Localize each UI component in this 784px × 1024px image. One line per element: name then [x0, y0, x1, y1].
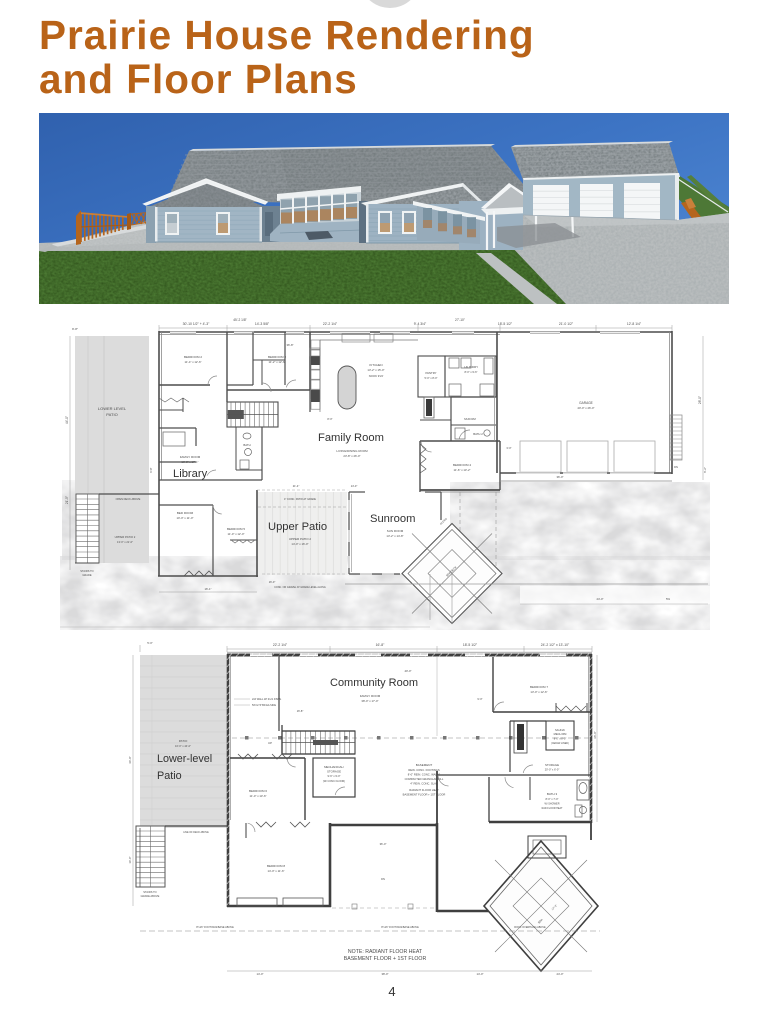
svg-text:24'-0": 24'-0"	[556, 972, 563, 976]
svg-text:SUN ROOM: SUN ROOM	[387, 529, 404, 533]
svg-text:CONC. OR GRAVEL AT GRADE LEVEL: CONC. OR GRAVEL AT GRADE LEVEL ALONG	[274, 586, 326, 589]
svg-text:16'-1": 16'-1"	[204, 587, 211, 591]
svg-text:GRADE ABOVE: GRADE ABOVE	[141, 894, 160, 898]
svg-text:38'-0" x 17'-0": 38'-0" x 17'-0"	[361, 699, 378, 703]
svg-text:13'-2" x 15'-0": 13'-2" x 15'-0"	[367, 368, 384, 372]
svg-text:9'-0": 9'-0"	[477, 697, 482, 701]
svg-text:Patio: Patio	[157, 770, 182, 782]
svg-text:PATIO: PATIO	[106, 412, 117, 417]
svg-text:16'-0": 16'-0"	[269, 580, 276, 584]
svg-text:16'-0" x 17'-1": 16'-0" x 17'-1"	[181, 460, 198, 464]
svg-text:STORAGE: STORAGE	[327, 770, 341, 774]
svg-text:36'-0": 36'-0"	[593, 731, 597, 739]
svg-text:13'-2" x 14'-8": 13'-2" x 14'-8"	[386, 534, 403, 538]
svg-text:FAMILY ROOM: FAMILY ROOM	[360, 694, 381, 698]
svg-text:24'-0": 24'-0"	[596, 597, 603, 601]
svg-text:14'-0" x 16'-0": 14'-0" x 16'-0"	[291, 542, 308, 546]
svg-text:5/8 GYP BD EA SIDE: 5/8 GYP BD EA SIDE	[252, 704, 276, 707]
svg-text:Family Room: Family Room	[318, 432, 384, 444]
svg-text:UP: UP	[268, 741, 272, 745]
svg-text:38'-0": 38'-0"	[381, 972, 388, 976]
svg-text:MECHANICAL/: MECHANICAL/	[324, 765, 344, 769]
svg-text:14'-0": 14'-0"	[256, 972, 263, 976]
svg-text:11'-0" x 13'-6": 11'-0" x 13'-6"	[250, 794, 267, 798]
svg-text:8'-0" x 9'-6": 8'-0" x 9'-6"	[464, 370, 477, 374]
svg-text:13'-0" x 12'-6": 13'-0" x 12'-6"	[530, 690, 547, 694]
svg-text:LOWER LEVEL: LOWER LEVEL	[98, 406, 127, 411]
svg-text:REIN. CONC. FOOTINGS: REIN. CONC. FOOTINGS	[408, 768, 440, 772]
svg-text:4" CONC. PATIO AT GRADE: 4" CONC. PATIO AT GRADE	[284, 498, 316, 501]
svg-text:LIVING/DINING ROOM: LIVING/DINING ROOM	[336, 449, 368, 453]
svg-text:BEDROOM 4: BEDROOM 4	[453, 463, 471, 467]
svg-text:9'-8": 9'-8"	[72, 327, 78, 331]
svg-text:13'-0" x 21'-0": 13'-0" x 21'-0"	[117, 540, 133, 544]
svg-text:5%: 5%	[666, 597, 671, 601]
svg-text:5'-0": 5'-0"	[147, 641, 153, 645]
svg-text:6'-2": 6'-2"	[703, 467, 707, 473]
svg-text:KITCHEN: KITCHEN	[369, 363, 382, 367]
svg-text:RAD FLOOR HEAT: RAD FLOOR HEAT	[542, 807, 563, 810]
svg-text:9'-4 3/4": 9'-4 3/4"	[414, 322, 427, 326]
svg-text:MECH RM: MECH RM	[554, 732, 568, 736]
svg-text:BASEMENT: BASEMENT	[416, 763, 433, 767]
svg-text:2x6 WALL W/ R-21 INSUL: 2x6 WALL W/ R-21 INSUL	[252, 698, 282, 701]
svg-text:16'-0" x 44'-0": 16'-0" x 44'-0"	[175, 744, 191, 748]
svg-text:GARAGE: GARAGE	[579, 401, 593, 405]
svg-text:9'-6" x 9'-0": 9'-6" x 9'-0"	[327, 774, 340, 778]
svg-text:LINE OF DECK ABOVE: LINE OF DECK ABOVE	[183, 831, 209, 834]
svg-text:8'-0": 8'-0"	[327, 417, 332, 421]
svg-text:PANTRY: PANTRY	[425, 371, 436, 375]
svg-text:28'-0": 28'-0"	[698, 396, 702, 404]
svg-text:45'-2 1/8": 45'-2 1/8"	[233, 318, 246, 322]
svg-text:BASEMENT FLOOR + 1ST FLOOR: BASEMENT FLOOR + 1ST FLOOR	[344, 956, 427, 962]
svg-text:UPPER PATIO 2: UPPER PATIO 2	[115, 535, 136, 539]
svg-text:BEDROOM 5: BEDROOM 5	[227, 527, 245, 531]
svg-text:21'-0 1/2": 21'-0 1/2"	[559, 322, 574, 326]
svg-text:21'-5": 21'-5"	[65, 496, 69, 504]
svg-text:44'-0": 44'-0"	[128, 756, 132, 764]
svg-text:22'-2 1/4": 22'-2 1/4"	[323, 322, 338, 326]
svg-text:PATIO: PATIO	[179, 739, 188, 743]
svg-text:BEDROOM 7: BEDROOM 7	[530, 685, 548, 689]
svg-text:BATH 3: BATH 3	[547, 792, 558, 796]
svg-text:11'-2" x 12'-6": 11'-2" x 12'-6"	[269, 360, 286, 364]
svg-text:FAMILY ROOM: FAMILY ROOM	[180, 455, 201, 459]
svg-text:(CEDAR LINED): (CEDAR LINED)	[551, 742, 569, 745]
svg-text:16'-0": 16'-0"	[128, 856, 132, 863]
svg-text:BEDROOM 3: BEDROOM 3	[268, 355, 286, 359]
svg-text:BEDROOM 8: BEDROOM 8	[267, 864, 285, 868]
svg-text:40'-0" x 26'-0": 40'-0" x 26'-0"	[577, 406, 594, 410]
svg-text:22'-2 1/4": 22'-2 1/4"	[273, 643, 288, 647]
svg-text:BEDROOM 6: BEDROOM 6	[249, 789, 267, 793]
svg-text:BASEMENT FLOOR + 1ST FLOOR: BASEMENT FLOOR + 1ST FLOOR	[403, 793, 446, 797]
svg-text:BATH: BATH	[243, 443, 250, 447]
svg-text:10'-0" x 11'-0": 10'-0" x 11'-0"	[177, 516, 194, 520]
svg-text:BED ROOM: BED ROOM	[177, 511, 194, 515]
svg-text:W/ SHOWER: W/ SHOWER	[545, 803, 560, 806]
svg-text:BATH 2: BATH 2	[473, 432, 483, 436]
svg-text:Upper Patio: Upper Patio	[268, 521, 327, 533]
svg-text:DN: DN	[674, 465, 678, 469]
svg-text:14'-3 5/8": 14'-3 5/8"	[255, 322, 270, 326]
svg-text:24'-2 1/2" x 13'-10": 24'-2 1/2" x 13'-10"	[541, 643, 570, 647]
svg-text:14'-0": 14'-0"	[351, 484, 358, 488]
svg-text:SAUNA/: SAUNA/	[555, 728, 565, 732]
svg-text:RADIANT FLOOR HEAT: RADIANT FLOOR HEAT	[409, 788, 439, 792]
svg-text:23'-8" x 26'-0": 23'-8" x 26'-0"	[343, 454, 360, 458]
svg-text:BEDROOM 2: BEDROOM 2	[184, 355, 202, 359]
svg-text:Lower-level: Lower-level	[157, 753, 212, 765]
svg-text:8'-0" REIN. CONC. WALLS: 8'-0" REIN. CONC. WALLS	[408, 773, 441, 777]
svg-text:8"x16" FOOTINGS/BASE ABOVE: 8"x16" FOOTINGS/BASE ABOVE	[196, 926, 234, 929]
svg-text:14'-0" x 11'-6": 14'-0" x 11'-6"	[268, 869, 285, 873]
svg-text:36'-0": 36'-0"	[556, 475, 563, 479]
svg-text:5'-0" x 8'-0": 5'-0" x 8'-0"	[424, 376, 437, 380]
svg-text:11'-4" x 12'-6": 11'-4" x 12'-6"	[185, 360, 202, 364]
svg-text:DN: DN	[381, 877, 385, 881]
svg-text:18'-5 1/2": 18'-5 1/2"	[463, 643, 478, 647]
svg-text:GRADE: GRADE	[82, 573, 91, 577]
svg-text:6'-8": 6'-8"	[149, 467, 153, 472]
svg-text:(W/ CONC FLOOR): (W/ CONC FLOOR)	[323, 780, 345, 783]
svg-text:MUD RM: MUD RM	[464, 417, 476, 421]
svg-text:36'-8": 36'-8"	[286, 343, 293, 347]
svg-text:8"x16" FOOTINGS/BASE ABOVE: 8"x16" FOOTINGS/BASE ABOVE	[381, 926, 419, 929]
svg-text:3'-0": 3'-0"	[506, 446, 511, 450]
svg-text:NOTE: RADIANT FLOOR HEAT: NOTE: RADIANT FLOOR HEAT	[348, 949, 423, 955]
svg-text:12'-8 1/4": 12'-8 1/4"	[627, 322, 642, 326]
svg-text:11'-6" x 13'-2": 11'-6" x 13'-2"	[454, 468, 471, 472]
svg-text:Community Room: Community Room	[330, 677, 418, 689]
svg-text:Library: Library	[173, 468, 208, 480]
svg-text:8'-0" x 8'-0": 8'-0" x 8'-0"	[554, 738, 567, 741]
svg-text:40'-0": 40'-0"	[404, 669, 411, 673]
svg-text:44'-0": 44'-0"	[65, 416, 69, 424]
svg-text:STORAGE: STORAGE	[545, 763, 559, 767]
svg-text:Sunroom: Sunroom	[370, 513, 415, 525]
svg-text:NOOK 9'x9': NOOK 9'x9'	[369, 374, 384, 378]
svg-text:14'-0": 14'-0"	[476, 972, 483, 976]
svg-text:STAIRS TO: STAIRS TO	[80, 569, 93, 573]
svg-text:16'-8": 16'-8"	[297, 709, 304, 713]
svg-text:8'-0" x 7'-0": 8'-0" x 7'-0"	[545, 797, 558, 801]
svg-text:20'-0" x 6'-0": 20'-0" x 6'-0"	[545, 768, 560, 772]
svg-text:30'-10 1/2" + 4'-3": 30'-10 1/2" + 4'-3"	[183, 322, 211, 326]
svg-text:ROOF OVERHANG ABOVE: ROOF OVERHANG ABOVE	[514, 926, 546, 929]
svg-text:16'-8": 16'-8"	[376, 643, 385, 647]
svg-text:36'-0": 36'-0"	[380, 842, 387, 846]
svg-text:21'-4": 21'-4"	[293, 484, 300, 488]
svg-text:STAIRS TO: STAIRS TO	[143, 890, 156, 894]
svg-text:OPEN DECK ABOVE: OPEN DECK ABOVE	[116, 497, 141, 501]
svg-text:UPPER PATIO 2: UPPER PATIO 2	[289, 537, 312, 541]
svg-text:11'-0" x 12'-0": 11'-0" x 12'-0"	[228, 532, 245, 536]
svg-text:4" REIN. CONC. SLAB: 4" REIN. CONC. SLAB	[410, 782, 438, 786]
svg-text:27'-10": 27'-10"	[455, 318, 465, 322]
